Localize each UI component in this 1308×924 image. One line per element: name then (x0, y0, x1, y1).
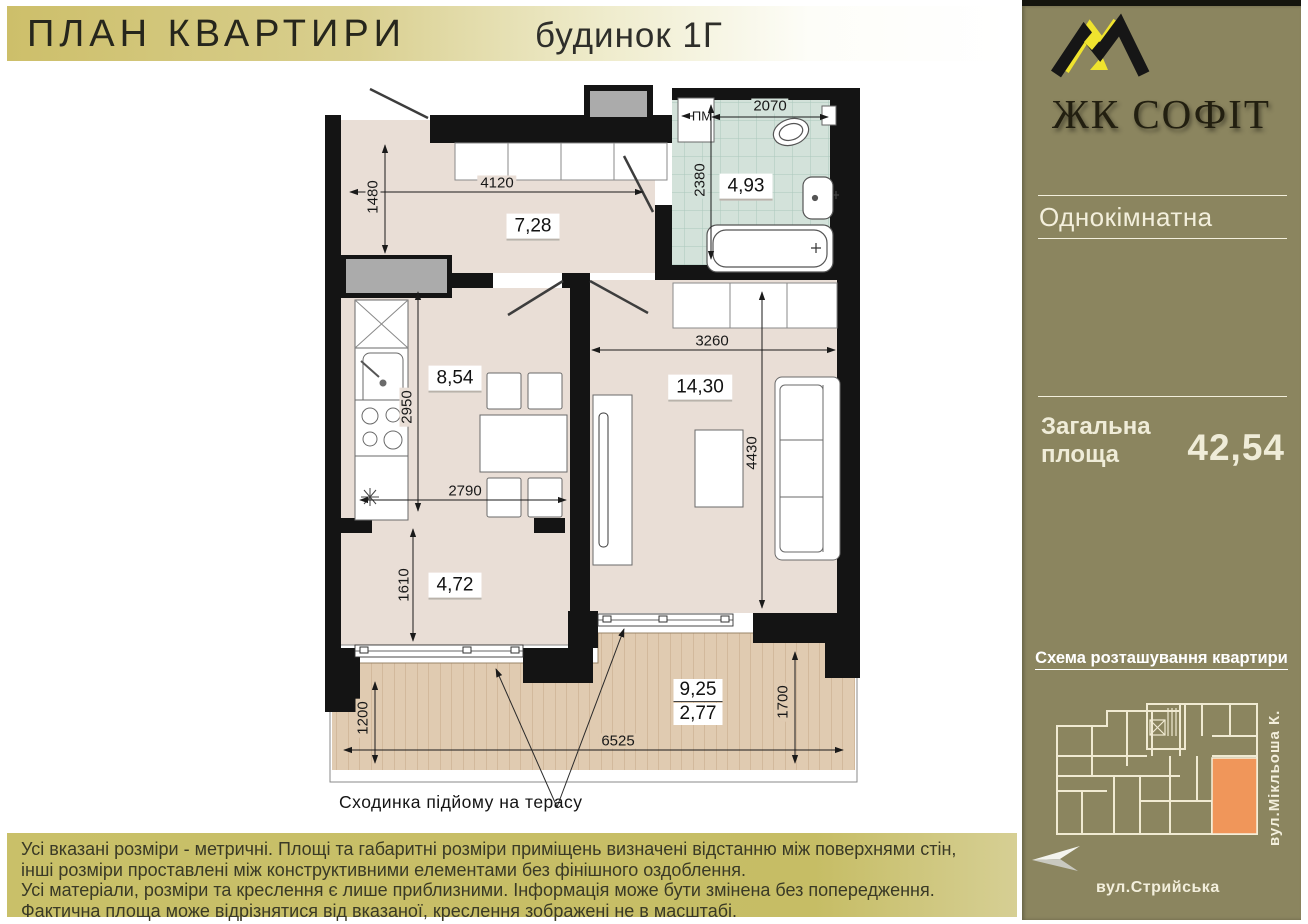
sidebar: ЖК СОФІТ Однокімнатна Загальна площа 42,… (1022, 0, 1301, 920)
page-title: ПЛАН КВАРТИРИ (27, 13, 406, 56)
dim-bath-width: 2070 (751, 99, 788, 114)
terrace-area-reduced: 2,77 (674, 703, 723, 725)
scheme-title: Схема розташування квартири (1022, 649, 1301, 668)
street-label-bottom: вул.Стрийська (1096, 879, 1220, 897)
dim-hall-width: 4120 (477, 176, 516, 191)
dim-hall-height: 1480 (366, 177, 381, 216)
dim-bath-height: 2380 (693, 161, 708, 198)
disclaimer-line: інші розміри проставлені між конструктив… (21, 860, 1017, 881)
terrace-area-total: 9,25 (674, 679, 723, 702)
dim-terrace-left-height: 1200 (356, 698, 371, 737)
dim-living-height: 4430 (745, 433, 760, 472)
disclaimer-line: Фактична площа може відрізнятися від вка… (21, 901, 1017, 922)
floor-plan: ПМ 2070 2380 4,93 1480 4120 7,28 2950 8,… (325, 85, 862, 820)
dim-terrace-right-height: 1700 (776, 682, 791, 721)
balcony-door-icon (598, 614, 733, 626)
room-area-bathroom: 4,93 (720, 174, 773, 201)
room-area-hallway: 7,28 (507, 214, 560, 241)
room-area-alcove: 4,72 (429, 573, 482, 600)
disclaimer-block: Усі вказані розміри - метричні. Площі та… (7, 833, 1017, 917)
building-minimap (1052, 696, 1262, 836)
building-label: будинок 1Г (535, 16, 723, 56)
dim-living-width: 3260 (692, 334, 731, 349)
dim-alcove-height: 1610 (397, 565, 412, 604)
divider (1038, 238, 1287, 239)
sofa-icon (775, 377, 840, 560)
terrace-step-annotation: Сходинка підйому на терасу (339, 792, 583, 813)
highlighted-apartment (1212, 758, 1257, 834)
disclaimer-line: Усі матеріали, розміри та креслення є ли… (21, 880, 1017, 901)
bathtub-icon (707, 225, 833, 272)
header-band: ПЛАН КВАРТИРИ будинок 1Г (7, 6, 1010, 61)
total-area-value: 42,54 (1187, 427, 1285, 469)
divider (1038, 195, 1287, 196)
north-arrow-icon (1030, 844, 1084, 879)
disclaimer-line: Усі вказані розміри - метричні. Площі та… (21, 839, 1017, 860)
room-area-kitchen: 8,54 (429, 366, 482, 393)
washing-machine-label: ПМ (692, 109, 712, 124)
street-label-side: вул.Мікльоша К. (1266, 706, 1283, 846)
room-area-living: 14,30 (668, 375, 732, 402)
divider (1038, 396, 1287, 397)
tv-unit-icon (593, 395, 632, 565)
brand-name: ЖК СОФІТ (1052, 90, 1292, 138)
terrace-door-icon (355, 645, 523, 657)
brand-logo-icon (1050, 12, 1150, 87)
dim-kitchen-height: 2950 (400, 387, 415, 426)
dim-terrace-width: 6525 (598, 734, 637, 749)
dim-kitchen-width: 2790 (445, 484, 484, 499)
shelf-icon (822, 106, 836, 125)
total-area-label: Загальна площа (1041, 413, 1151, 469)
coffee-table-icon (695, 430, 743, 507)
apartment-type: Однокімнатна (1039, 202, 1213, 233)
stair-core-icon (1150, 708, 1180, 736)
terrace-area-fraction: 9,25 2,77 (674, 679, 723, 725)
